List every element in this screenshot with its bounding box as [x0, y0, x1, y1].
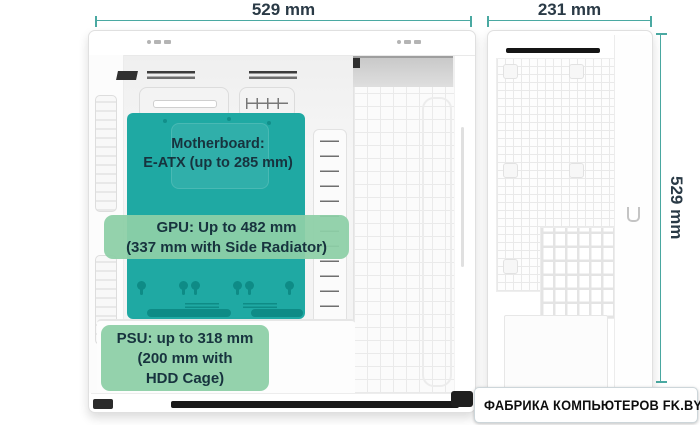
- mount-plate: [503, 64, 518, 79]
- width-dimension-line: [95, 20, 472, 21]
- watermark-badge: ФАБРИКА КОМПЬЮТЕРОВ FK.BY: [474, 387, 698, 423]
- top-recess-panel: [353, 56, 453, 89]
- rail-pattern: [246, 98, 288, 109]
- vent-slot: [116, 71, 138, 80]
- bracket-slot: [153, 100, 217, 108]
- gpu-annotation-line2: (337 mm with Side Radiator): [104, 238, 349, 258]
- cable-grommet: [95, 95, 117, 212]
- tray-vent: [243, 303, 277, 308]
- tray-cutout: [147, 309, 231, 317]
- mesh-bracket: [422, 97, 452, 387]
- standoff-keyhole: [285, 281, 294, 290]
- screw-hole: [163, 119, 167, 123]
- io-ports-icon: [397, 40, 421, 44]
- io-ports-icon: [147, 40, 171, 44]
- base-shadow-strip: [171, 401, 459, 408]
- front-mesh-panel: [353, 87, 454, 393]
- vent-slot: [147, 71, 195, 79]
- case-open-side-view: Motherboard: E-ATX (up to 285 mm) GPU: U…: [88, 30, 476, 413]
- side-wall-slot: [461, 127, 464, 267]
- psu-side-panel: [504, 315, 608, 389]
- mount-plate: [569, 64, 584, 79]
- handle-icon: [627, 207, 640, 222]
- mount-plate: [569, 163, 584, 178]
- screw-hole: [267, 121, 271, 125]
- motherboard-annotation: Motherboard: E-ATX (up to 285 mm): [133, 135, 303, 173]
- standoff-keyhole: [191, 281, 200, 290]
- standoff-keyhole: [179, 281, 188, 290]
- width-dimension-label: 529 mm: [95, 0, 472, 20]
- recess-corner: [353, 58, 360, 68]
- standoff-keyhole: [245, 281, 254, 290]
- psu-annotation-line1: PSU: up to 318 mm: [101, 329, 269, 349]
- height-dimension-label: 529 mm: [666, 33, 686, 383]
- screw-hole: [227, 117, 231, 121]
- psu-annotation-line3: HDD Cage): [101, 369, 269, 389]
- mount-plate: [503, 163, 518, 178]
- standoff-keyhole: [137, 281, 146, 290]
- top-vent-strip: [506, 48, 600, 53]
- psu-annotation: PSU: up to 318 mm (200 mm with HDD Cage): [101, 325, 269, 391]
- gpu-annotation-line1: GPU: Up to 482 mm: [104, 218, 349, 238]
- gpu-annotation: GPU: Up to 482 mm (337 mm with Side Radi…: [104, 215, 349, 259]
- watermark-text: ФАБРИКА КОМПЬЮТЕРОВ FK.BY: [484, 398, 700, 413]
- tray-vent: [185, 303, 219, 308]
- tray-cutout: [251, 309, 303, 317]
- case-foot: [93, 399, 113, 409]
- vent-slot: [249, 71, 297, 79]
- motherboard-annotation-line1: Motherboard:: [133, 135, 303, 154]
- depth-dimension-label: 231 mm: [487, 0, 652, 20]
- case-foot: [451, 391, 473, 407]
- psu-annotation-line2: (200 mm with: [101, 349, 269, 369]
- case-rear-view: [487, 30, 653, 406]
- case-dimensions-diagram: 529 mm 231 mm 529 mm: [0, 0, 700, 425]
- side-column: [614, 35, 651, 401]
- depth-dimension-line: [487, 20, 652, 21]
- mount-plate: [503, 259, 518, 274]
- standoff-keyhole: [233, 281, 242, 290]
- motherboard-annotation-line2: E-ATX (up to 285 mm): [133, 154, 303, 173]
- vent-slot-rows: [540, 227, 616, 319]
- height-dimension-line: [660, 33, 661, 383]
